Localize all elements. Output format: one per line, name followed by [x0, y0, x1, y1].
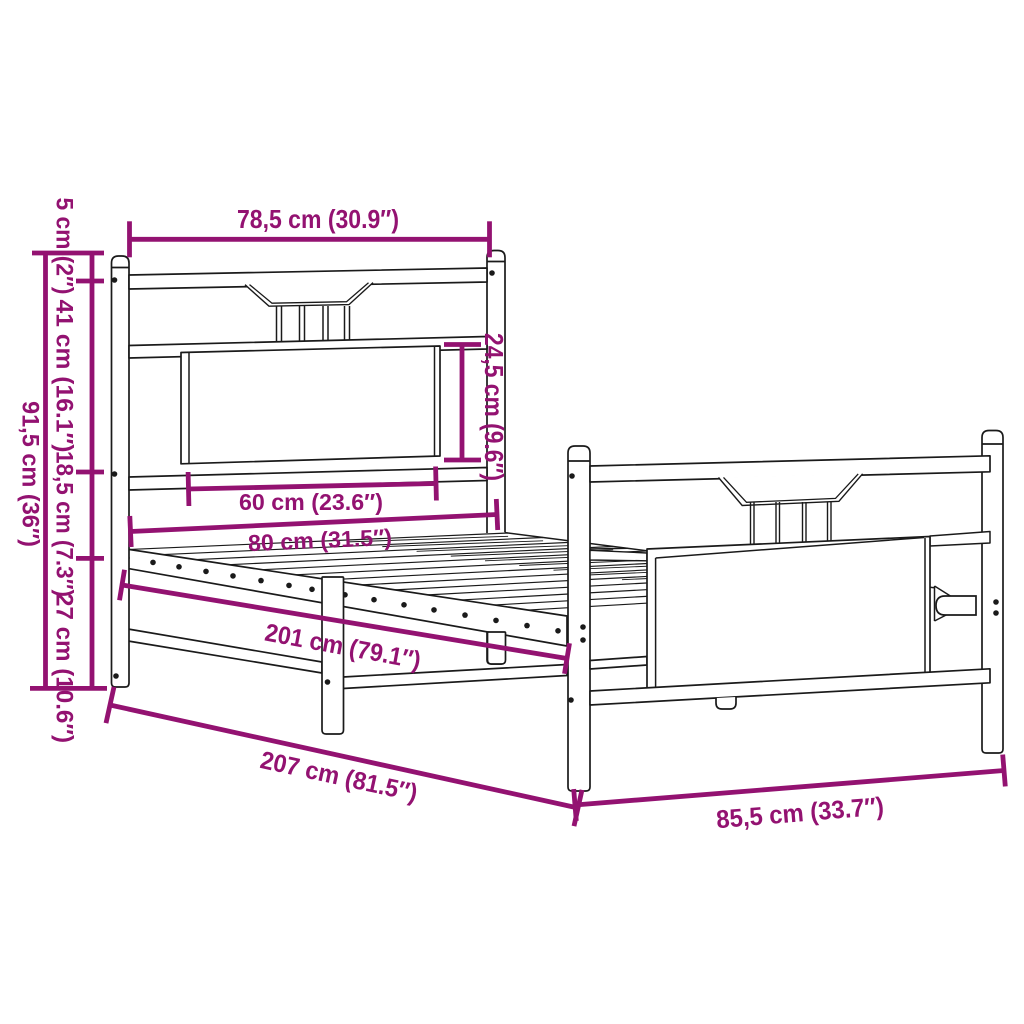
- svg-text:78,5 cm (30.9″): 78,5 cm (30.9″): [237, 204, 399, 234]
- svg-text:24,5 cm (9.6″): 24,5 cm (9.6″): [479, 333, 509, 481]
- svg-text:41 cm (16.1″): 41 cm (16.1″): [51, 300, 78, 453]
- svg-text:91,5 cm (36″): 91,5 cm (36″): [16, 401, 43, 547]
- svg-text:27 cm (10.6″): 27 cm (10.6″): [51, 593, 78, 743]
- svg-text:85,5 cm (33.7″): 85,5 cm (33.7″): [715, 793, 885, 835]
- svg-text:5 cm (2″): 5 cm (2″): [51, 198, 78, 295]
- svg-text:60 cm (23.6″): 60 cm (23.6″): [239, 489, 383, 515]
- svg-text:18,5 cm (7.3″): 18,5 cm (7.3″): [51, 451, 78, 597]
